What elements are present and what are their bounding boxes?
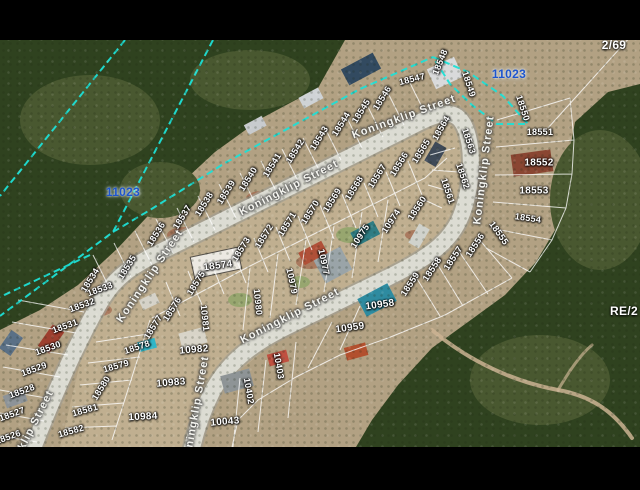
letterbox-top: [0, 0, 640, 40]
screenshot-root: 1853418535185361853718538185391854018541…: [0, 0, 640, 490]
bush-texture: [120, 162, 200, 218]
letterbox-bottom: [0, 447, 640, 490]
lawn-patch: [228, 293, 252, 307]
map-viewport[interactable]: 1853418535185361853718538185391854018541…: [0, 40, 640, 447]
bush-texture: [190, 50, 310, 110]
bush-texture: [20, 75, 160, 165]
aerial-cadastral-overlay: [0, 40, 640, 447]
